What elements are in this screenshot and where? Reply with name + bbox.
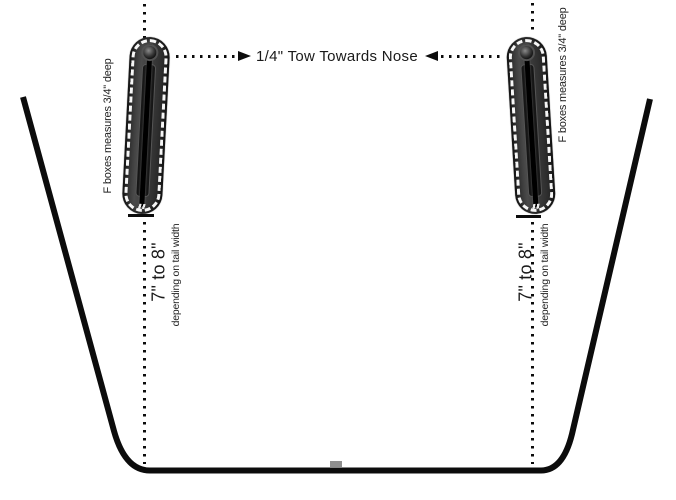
distance-note-right: depending on tail width — [539, 224, 551, 327]
distance-label-left: 7" to 8" — [149, 242, 170, 301]
dotted-tow-line-left — [176, 55, 236, 58]
dotted-guide-top-left — [143, 4, 146, 38]
box-depth-label-right: F boxes measures 3/4" deep — [557, 7, 569, 142]
stringer-mark — [330, 461, 342, 467]
box-depth-label-left: F boxes measures 3/4" deep — [102, 58, 114, 193]
measurement-end-tick-left — [128, 214, 154, 217]
arrow-left-icon — [425, 51, 438, 61]
dotted-guide-top-right — [531, 3, 534, 35]
fin-placement-diagram: 1/4" Tow Towards Nose F boxes measures 3… — [0, 0, 676, 500]
futures-logo-mark — [529, 203, 542, 209]
futures-logo-mark — [135, 204, 148, 210]
distance-note-left: depending on tail width — [170, 224, 182, 327]
dotted-measure-line-left — [143, 222, 146, 464]
dotted-tow-line-right — [441, 55, 504, 58]
tow-towards-nose-label: 1/4" Tow Towards Nose — [256, 48, 418, 65]
arrow-right-icon — [238, 51, 251, 61]
distance-label-right: 7" to 8" — [516, 242, 537, 301]
tail-rail-path — [23, 97, 650, 471]
measurement-end-tick-right — [516, 215, 541, 218]
